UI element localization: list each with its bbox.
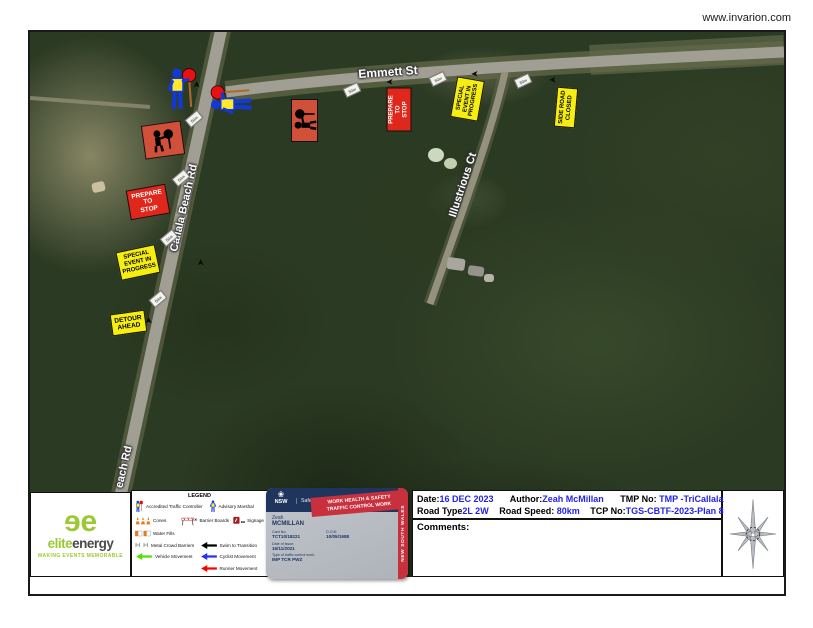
bottom-margin [30, 577, 784, 594]
legend-panel: LEGEND Accredited Traffic Controller [131, 490, 268, 577]
tcp-number: TGS-CBTF-2023-Plan 8 [626, 506, 724, 516]
comments-box: Comments: [412, 519, 722, 577]
traffic-controller-symbol-icon [145, 125, 180, 155]
traffic-controller-symbol-sign [291, 99, 318, 142]
legend-item: Water Fills [135, 530, 209, 537]
legend-item: Runner Movement [200, 565, 265, 572]
road-speed: 80km [557, 506, 580, 516]
traffic-controller-figure [167, 66, 199, 113]
barrier-boards-icon [181, 516, 197, 526]
plan-date: 16 DEC 2023 [440, 494, 494, 504]
metal-crowd-barriers-icon [135, 542, 149, 548]
prepare-to-stop-sign: PREPARE TO STOP [387, 88, 412, 132]
tmp-number: TMP -TriCallala [659, 494, 723, 504]
signage-icon [233, 516, 245, 525]
water-fills-icon [135, 530, 151, 537]
legend-item: Accredited Traffic Controller [135, 500, 209, 513]
building [444, 158, 457, 169]
flow-arrow-icon: ➤ [549, 75, 557, 84]
plan-info-header: Date:16 DEC 2023 Author:Zeah McMillan TM… [412, 490, 722, 519]
flow-arrow-icon: ➤ [386, 77, 394, 86]
compass-rose-icon [726, 494, 780, 574]
flow-arrow-icon: ➤ [196, 259, 205, 267]
flow-arrow-icon: ➤ [144, 317, 153, 325]
info-line-2: Road Type2L 2W Road Speed: 80km TCP No:T… [417, 505, 717, 517]
nsw-government-logo: ❀ NSW [271, 491, 291, 509]
invarion-watermark: www.invarion.com [702, 12, 791, 24]
card-number: TCT10/18221 [272, 534, 300, 539]
red-arrow-icon [200, 565, 218, 572]
card-side-band: NEW SOUTH WALES [398, 488, 408, 579]
legend-item: Advisory Marshal [209, 500, 264, 513]
info-line-1: Date:16 DEC 2023 Author:Zeah McMillan TM… [417, 493, 717, 505]
elite-energy-ee-icon: ee [71, 510, 90, 534]
legend-item: Signage [233, 516, 264, 525]
card-body: Zeah MCMILLAN Card No: TCT10/18221 D.O.B… [272, 515, 394, 562]
legend-item: Barrier Boards [181, 516, 233, 526]
building [428, 148, 444, 162]
flow-arrow-icon: ➤ [471, 69, 479, 78]
legend-item: Cones [135, 516, 181, 525]
elite-energy-tagline: MAKING EVENTS MEMORABLE [38, 553, 123, 559]
waratah-icon: ❀ [271, 491, 291, 499]
comments-label: Comments: [417, 522, 717, 534]
building [484, 274, 494, 282]
card-surname: MCMILLAN [272, 521, 394, 527]
traffic-controller-figure [209, 83, 256, 115]
card-work-types: IMP TCR PWZ [272, 557, 315, 562]
plan-author: Zeah McMillan [542, 494, 604, 504]
blue-arrow-icon [200, 553, 218, 560]
legend-title: LEGEND [135, 493, 264, 499]
road-type: 2L 2W [462, 506, 488, 516]
elite-energy-wordmark: eliteenergy [48, 536, 114, 551]
compass-box [722, 490, 784, 577]
legend-item: Vehicle Movement [135, 553, 200, 560]
legend-item: Swim to Transition [200, 542, 265, 549]
black-arrow-icon [200, 542, 218, 549]
side-road-closed-sign: SIDE ROAD CLOSED [554, 87, 578, 129]
plan-sheet: www.invarion.com Emmett St Cal [0, 0, 813, 628]
traffic-controller-symbol-icon [292, 105, 318, 137]
card-dob: 10/05/1988 [326, 534, 349, 539]
legend-item: Metal Crowd Barriers [135, 542, 200, 548]
building [446, 257, 465, 271]
building [467, 265, 484, 277]
legend-item: Cyclist Movement [200, 553, 265, 560]
cones-icon [135, 516, 151, 525]
safework-nsw-card: ❀ NSW SafeWork NSW WORK HEALTH & SAFETY … [266, 488, 408, 579]
traffic-controller-icon [135, 500, 144, 513]
card-issue-date: 16/11/2021 [272, 546, 295, 551]
advisory-marshal-icon [209, 500, 217, 513]
traffic-controller-symbol-sign [141, 120, 185, 159]
plan-frame: Emmett St Callala Beach Rd each Rd Illus… [28, 30, 786, 596]
green-arrow-icon [135, 553, 153, 560]
elite-energy-logo: ee eliteenergy MAKING EVENTS MEMORABLE [30, 492, 131, 577]
